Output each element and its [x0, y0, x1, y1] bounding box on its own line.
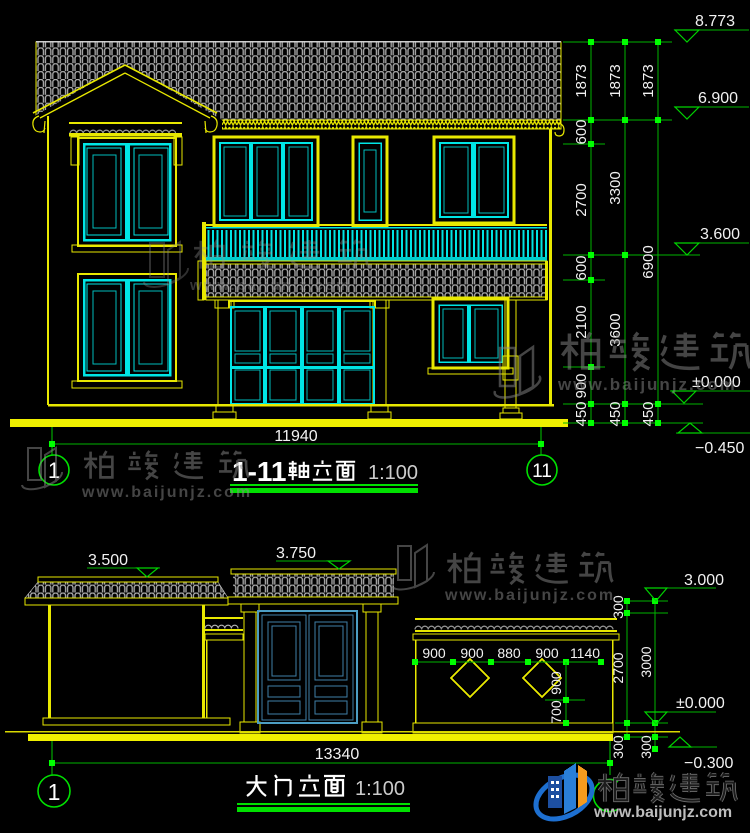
svg-text:3.600: 3.600 — [700, 226, 740, 243]
svg-text:11940: 11940 — [274, 428, 317, 445]
svg-text:3.000: 3.000 — [684, 572, 724, 589]
svg-text:3.500: 3.500 — [88, 552, 128, 569]
svg-text:www.baijunjz.com: www.baijunjz.com — [557, 375, 737, 394]
svg-text:1:100: 1:100 — [368, 462, 418, 484]
svg-text:−0.450: −0.450 — [695, 440, 744, 457]
svg-text:13340: 13340 — [315, 746, 360, 763]
svg-text:900: 900 — [460, 645, 484, 661]
svg-text:www.baijunjz.com: www.baijunjz.com — [189, 277, 351, 294]
svg-text:±0.000: ±0.000 — [676, 695, 725, 712]
svg-text:2700: 2700 — [610, 652, 626, 683]
svg-text:900: 900 — [422, 645, 446, 661]
svg-text:1140: 1140 — [570, 645, 600, 661]
svg-text:1873: 1873 — [573, 64, 590, 97]
svg-text:600: 600 — [573, 119, 590, 144]
svg-text:−0.300: −0.300 — [684, 755, 733, 772]
svg-text:www.baijunjz.com: www.baijunjz.com — [593, 804, 732, 821]
svg-text:www.baijunjz.com: www.baijunjz.com — [444, 587, 615, 604]
svg-text:1873: 1873 — [640, 64, 657, 97]
svg-text:11: 11 — [532, 461, 552, 482]
svg-text:450: 450 — [607, 401, 624, 426]
svg-text:3.750: 3.750 — [276, 545, 316, 562]
svg-text:6900: 6900 — [640, 245, 657, 278]
svg-text:6.900: 6.900 — [698, 90, 738, 107]
svg-text:900: 900 — [548, 671, 564, 695]
svg-text:3300: 3300 — [607, 171, 624, 204]
svg-text:2700: 2700 — [573, 183, 590, 216]
svg-text:1873: 1873 — [607, 64, 624, 97]
svg-text:700: 700 — [548, 700, 564, 724]
svg-text:3000: 3000 — [638, 646, 654, 677]
svg-text:600: 600 — [573, 255, 590, 280]
svg-text:2100: 2100 — [573, 305, 590, 338]
svg-text:450: 450 — [640, 401, 657, 426]
svg-text:1:100: 1:100 — [355, 778, 405, 800]
svg-text:450: 450 — [573, 401, 590, 426]
svg-text:8.773: 8.773 — [695, 13, 735, 30]
svg-text:www.baijunjz.com: www.baijunjz.com — [81, 484, 252, 501]
svg-text:300: 300 — [638, 735, 654, 759]
svg-text:880: 880 — [497, 645, 521, 661]
svg-text:1: 1 — [48, 779, 61, 805]
svg-text:900: 900 — [535, 645, 559, 661]
